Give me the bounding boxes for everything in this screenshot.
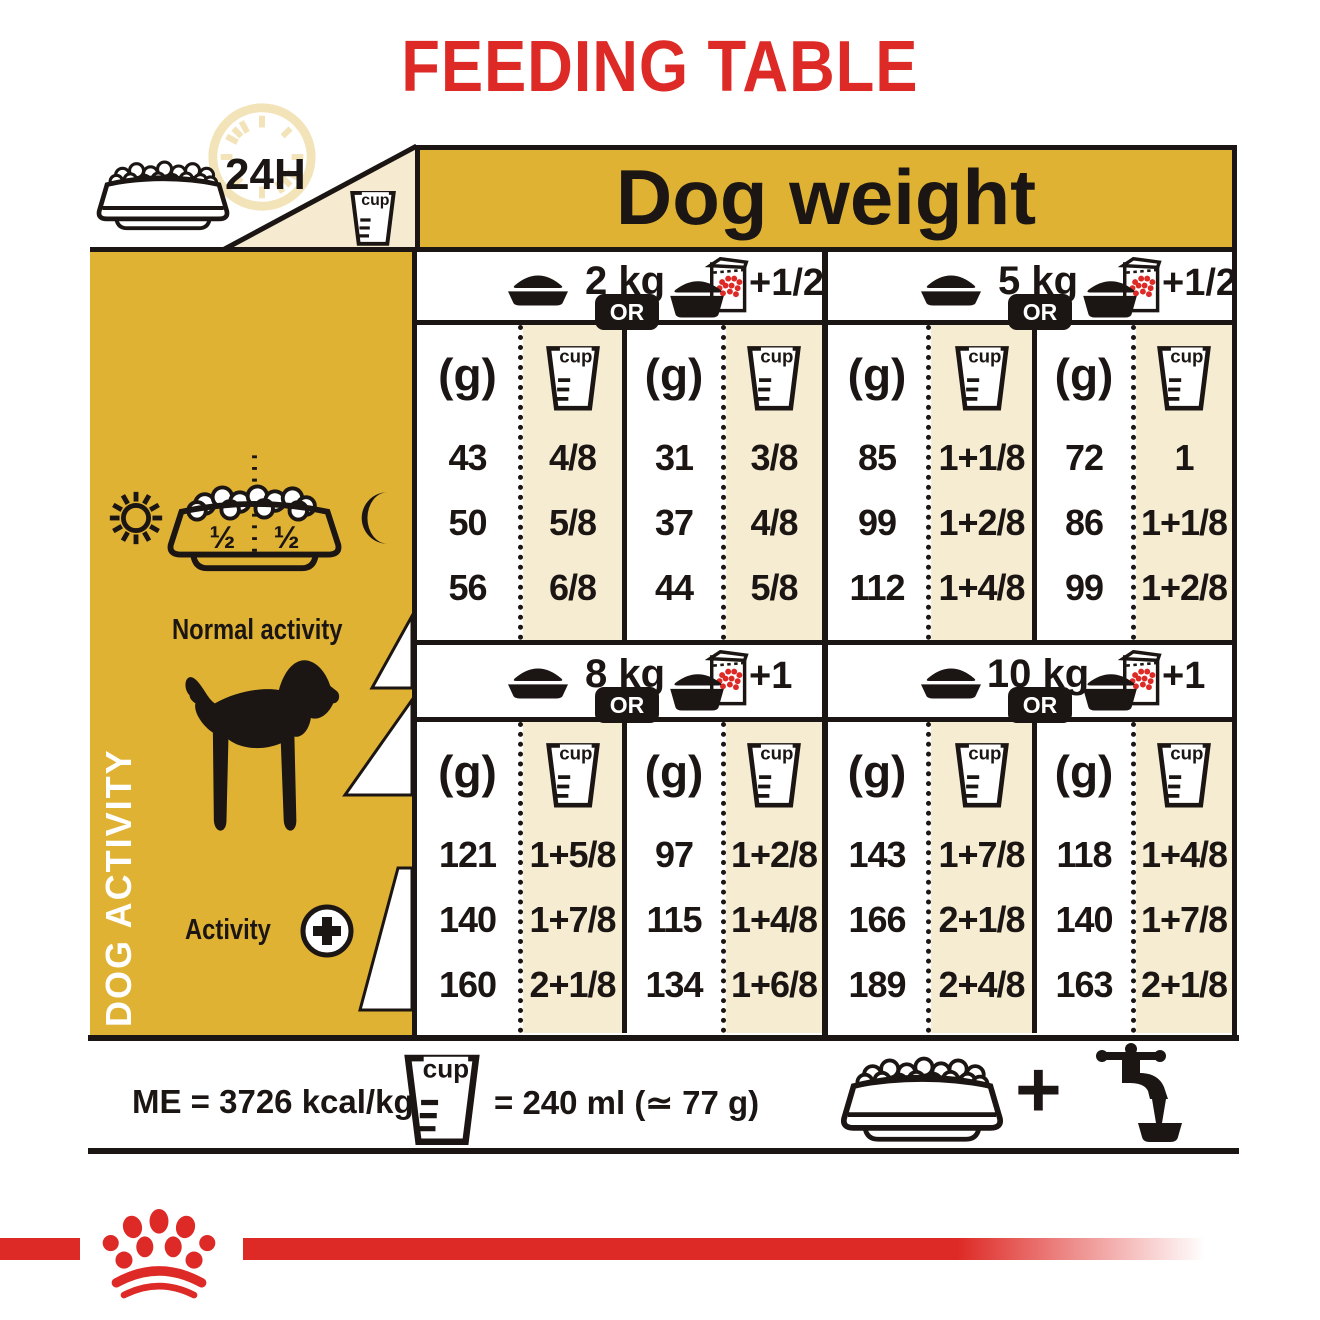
grid-line [88,1148,1239,1154]
cell: 72 [1037,425,1131,490]
kibble-bowl-icon [93,155,233,233]
cell: 118 [1037,822,1131,887]
dog-activity-label: DOG ACTIVITY [98,597,140,1027]
cell: 1+1/8 [1136,490,1232,555]
cell: 50 [417,490,518,555]
cell: 5/8 [523,490,622,555]
cell: 1+2/8 [931,490,1032,555]
grams-unit-label: (g) [417,325,518,425]
cell: 4/8 [523,425,622,490]
weight-band-8kg: 8 kg OR +1 [415,645,822,717]
cell: 1+2/8 [1136,555,1232,620]
grams-unit-label: (g) [1037,325,1131,425]
cup-equivalence-label: = 240 ml (≃ 77 g) [494,1083,759,1122]
measuring-cup-icon [954,736,1010,809]
grams-column-5kg-dry: (g) 85 99 112 [828,325,926,640]
cell: 140 [417,887,518,952]
grams-column-8kg-dry: (g) 121 140 160 [417,722,518,1033]
cell: 1+2/8 [726,822,822,887]
cell: 2+4/8 [931,952,1032,1017]
cell: 189 [828,952,926,1017]
food-bowl-icon [916,661,986,701]
cell: 160 [417,952,518,1017]
grams-unit-label: (g) [417,722,518,822]
cell: 1+4/8 [1136,822,1232,887]
page-title: FEEDING TABLE [0,26,1320,108]
kibble-bowl-icon [832,1050,1012,1145]
cell: 1+6/8 [726,952,822,1017]
pouch-bowl-icon [1078,257,1168,321]
grid-line [1232,247,1237,1035]
grams-column-10kg-mixed: (g) 118 140 163 [1037,722,1131,1033]
grams-column-2kg-mixed: (g) 31 37 44 [627,325,721,640]
cell: 99 [828,490,926,555]
cell: 112 [828,555,926,620]
cups-column-8kg-mixed: 1+2/8 1+4/8 1+6/8 [726,722,822,1033]
grid-line [90,247,1237,252]
grid-line [88,1035,1239,1041]
cups-column-5kg-dry: 1+1/8 1+2/8 1+4/8 [931,325,1032,640]
cell: 1+7/8 [931,822,1032,887]
cell: 86 [1037,490,1131,555]
or-badge: OR [595,294,659,330]
cups-column-10kg-mixed: 1+4/8 1+7/8 2+1/8 [1136,722,1232,1033]
supplement-label: +1/2 [749,262,825,305]
cups-column-5kg-mixed: 1 1+1/8 1+2/8 [1136,325,1232,640]
cell: 2+1/8 [1136,952,1232,1017]
cell: 115 [627,887,721,952]
cell: 6/8 [523,555,622,620]
grams-unit-label: (g) [1037,722,1131,822]
measuring-cup-icon [398,1045,486,1147]
top-left-zone: 24H [90,145,415,252]
food-bowl-icon [503,661,573,701]
measuring-cup-icon [954,339,1010,412]
weight-band-10kg: 10 kg OR +1 [828,645,1232,717]
measuring-cup-icon [1156,736,1212,809]
supplement-label: +1 [1162,655,1238,698]
grams-unit-label: (g) [627,325,721,425]
cell: 44 [627,555,721,620]
pouch-bowl-icon [1078,650,1168,714]
hours-label: 24H [225,150,306,200]
feeding-table-page: FEEDING TABLE 24H Dog weight DOG ACTIVIT… [0,0,1320,1320]
grams-unit-label: (g) [828,325,926,425]
cell: 85 [828,425,926,490]
cell: 5/8 [726,555,822,620]
cups-column-2kg-dry: 4/8 5/8 6/8 [523,325,622,640]
pouch-bowl-icon [665,257,755,321]
cell: 140 [1037,887,1131,952]
plus-label: + [1015,1050,1062,1130]
cell: 143 [828,822,926,887]
cell: 37 [627,490,721,555]
weight-band-2kg: 2 kg OR +1/2 [415,252,822,325]
water-tap-icon [1078,1043,1183,1145]
half-bowl-icon [162,455,347,587]
sun-icon [105,487,167,549]
grams-column-2kg-dry: (g) 43 50 56 [417,325,518,640]
weight-band-5kg: 5 kg OR +1/2 [828,252,1232,325]
brand-bar-left [0,1238,80,1260]
grams-column-5kg-mixed: (g) 72 86 99 [1037,325,1131,640]
measuring-cup-icon [545,736,601,809]
measuring-cup-icon [1156,339,1212,412]
grams-unit-label: (g) [828,722,926,822]
cell: 56 [417,555,518,620]
or-badge: OR [1008,294,1072,330]
cups-column-2kg-mixed: 3/8 4/8 5/8 [726,325,822,640]
or-badge: OR [1008,687,1072,723]
cell: 2+1/8 [931,887,1032,952]
measuring-cup-icon [746,339,802,412]
cell: 1+4/8 [726,887,822,952]
cell: 2+1/8 [523,952,622,1017]
food-bowl-icon [916,268,986,308]
dog-weight-header: Dog weight [415,145,1237,252]
cups-column-8kg-dry: 1+5/8 1+7/8 2+1/8 [523,722,622,1033]
cell: 163 [1037,952,1131,1017]
cell: 31 [627,425,721,490]
cell: 1+7/8 [523,887,622,952]
food-bowl-icon [503,268,573,308]
moon-icon [355,490,399,546]
measuring-cup-icon [746,736,802,809]
supplement-label: +1/2 [1162,262,1238,305]
cell: 1+1/8 [931,425,1032,490]
pouch-bowl-icon [665,650,755,714]
cell: 4/8 [726,490,822,555]
me-kcal-label: ME = 3726 kcal/kg [132,1083,414,1121]
measuring-cup-icon [545,339,601,412]
or-badge: OR [595,687,659,723]
cell: 166 [828,887,926,952]
dog-activity-sidebar: DOG ACTIVITY Normal activity Activity [90,252,415,1035]
activity-label: Activity [185,914,290,947]
cell: 1+5/8 [523,822,622,887]
royal-canin-crown-icon [88,1205,230,1300]
cell: 1 [1136,425,1232,490]
feeding-table: 24H Dog weight DOG ACTIVITY Normal activ… [90,145,1237,1155]
activity-level-shapes [305,607,413,1017]
cups-column-10kg-dry: 1+7/8 2+1/8 2+4/8 [931,722,1032,1033]
cell: 134 [627,952,721,1017]
cell: 99 [1037,555,1131,620]
cell: 121 [417,822,518,887]
cell: 1+4/8 [931,555,1032,620]
cell: 3/8 [726,425,822,490]
grams-column-8kg-mixed: (g) 97 115 134 [627,722,721,1033]
grams-column-10kg-dry: (g) 143 166 189 [828,722,926,1033]
grams-unit-label: (g) [627,722,721,822]
cell: 97 [627,822,721,887]
measuring-cup-icon [348,185,398,247]
brand-bar-right [243,1238,1235,1260]
supplement-label: +1 [749,655,825,698]
cell: 1+7/8 [1136,887,1232,952]
cell: 43 [417,425,518,490]
